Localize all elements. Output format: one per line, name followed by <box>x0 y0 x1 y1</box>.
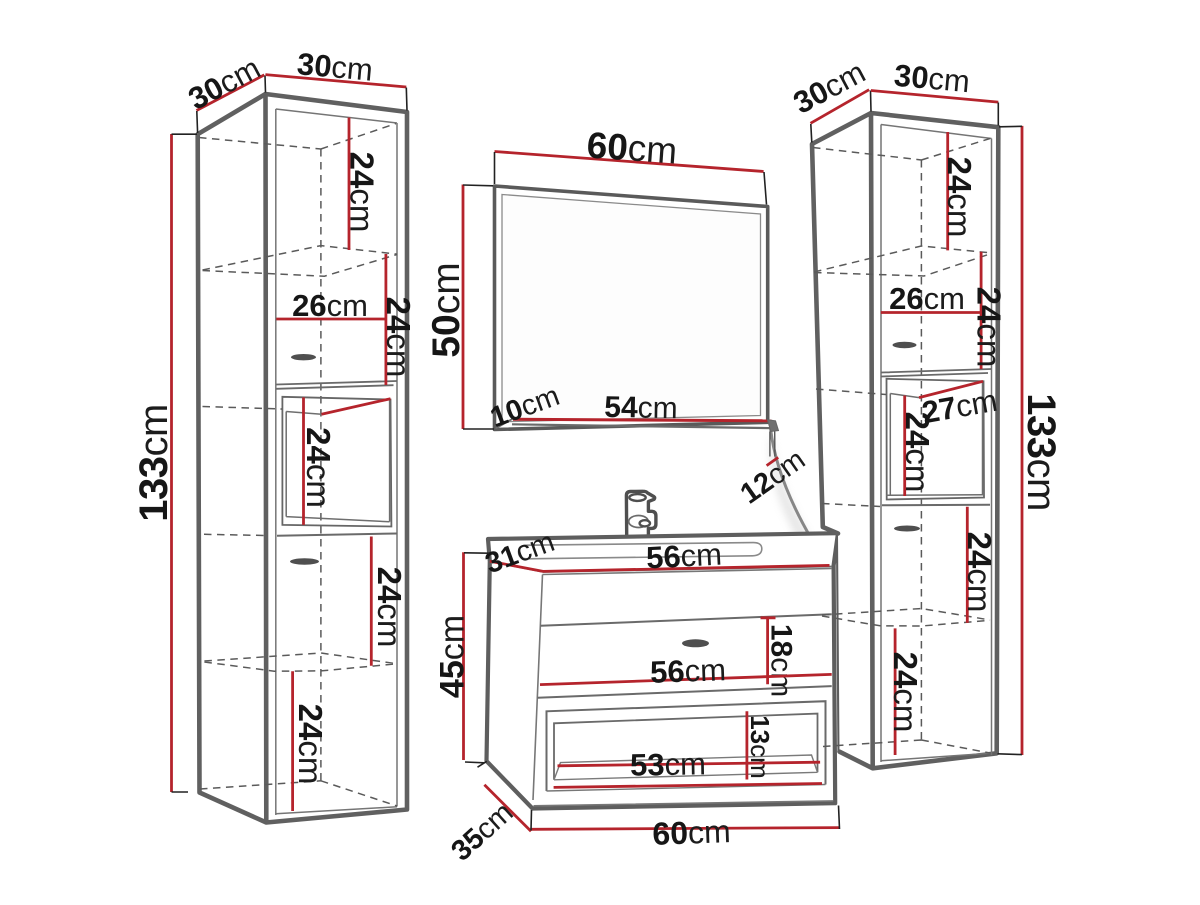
svg-text:133cm: 133cm <box>132 404 176 522</box>
svg-text:54cm: 54cm <box>604 390 678 424</box>
svg-text:24cm: 24cm <box>293 704 330 785</box>
svg-text:24cm: 24cm <box>971 287 1008 368</box>
svg-text:24cm: 24cm <box>900 412 937 493</box>
svg-text:30cm: 30cm <box>296 46 375 87</box>
svg-text:50cm: 50cm <box>425 262 468 357</box>
svg-text:24cm: 24cm <box>962 532 999 613</box>
svg-text:13cm: 13cm <box>745 715 775 779</box>
svg-text:60cm: 60cm <box>652 813 731 852</box>
svg-text:26cm: 26cm <box>292 288 368 323</box>
svg-text:24cm: 24cm <box>942 157 979 238</box>
svg-text:24cm: 24cm <box>888 652 925 733</box>
svg-text:24cm: 24cm <box>381 297 418 378</box>
svg-text:18cm: 18cm <box>765 624 798 697</box>
svg-text:133cm: 133cm <box>1019 393 1063 511</box>
svg-text:56cm: 56cm <box>650 652 727 690</box>
svg-text:24cm: 24cm <box>372 567 409 648</box>
svg-text:24cm: 24cm <box>301 427 338 508</box>
svg-text:45cm: 45cm <box>434 615 472 698</box>
svg-text:56cm: 56cm <box>645 536 723 575</box>
svg-text:26cm: 26cm <box>889 281 965 316</box>
svg-text:24cm: 24cm <box>344 152 381 233</box>
svg-text:60cm: 60cm <box>585 124 678 171</box>
svg-text:53cm: 53cm <box>630 746 706 782</box>
svg-text:30cm: 30cm <box>893 57 972 98</box>
